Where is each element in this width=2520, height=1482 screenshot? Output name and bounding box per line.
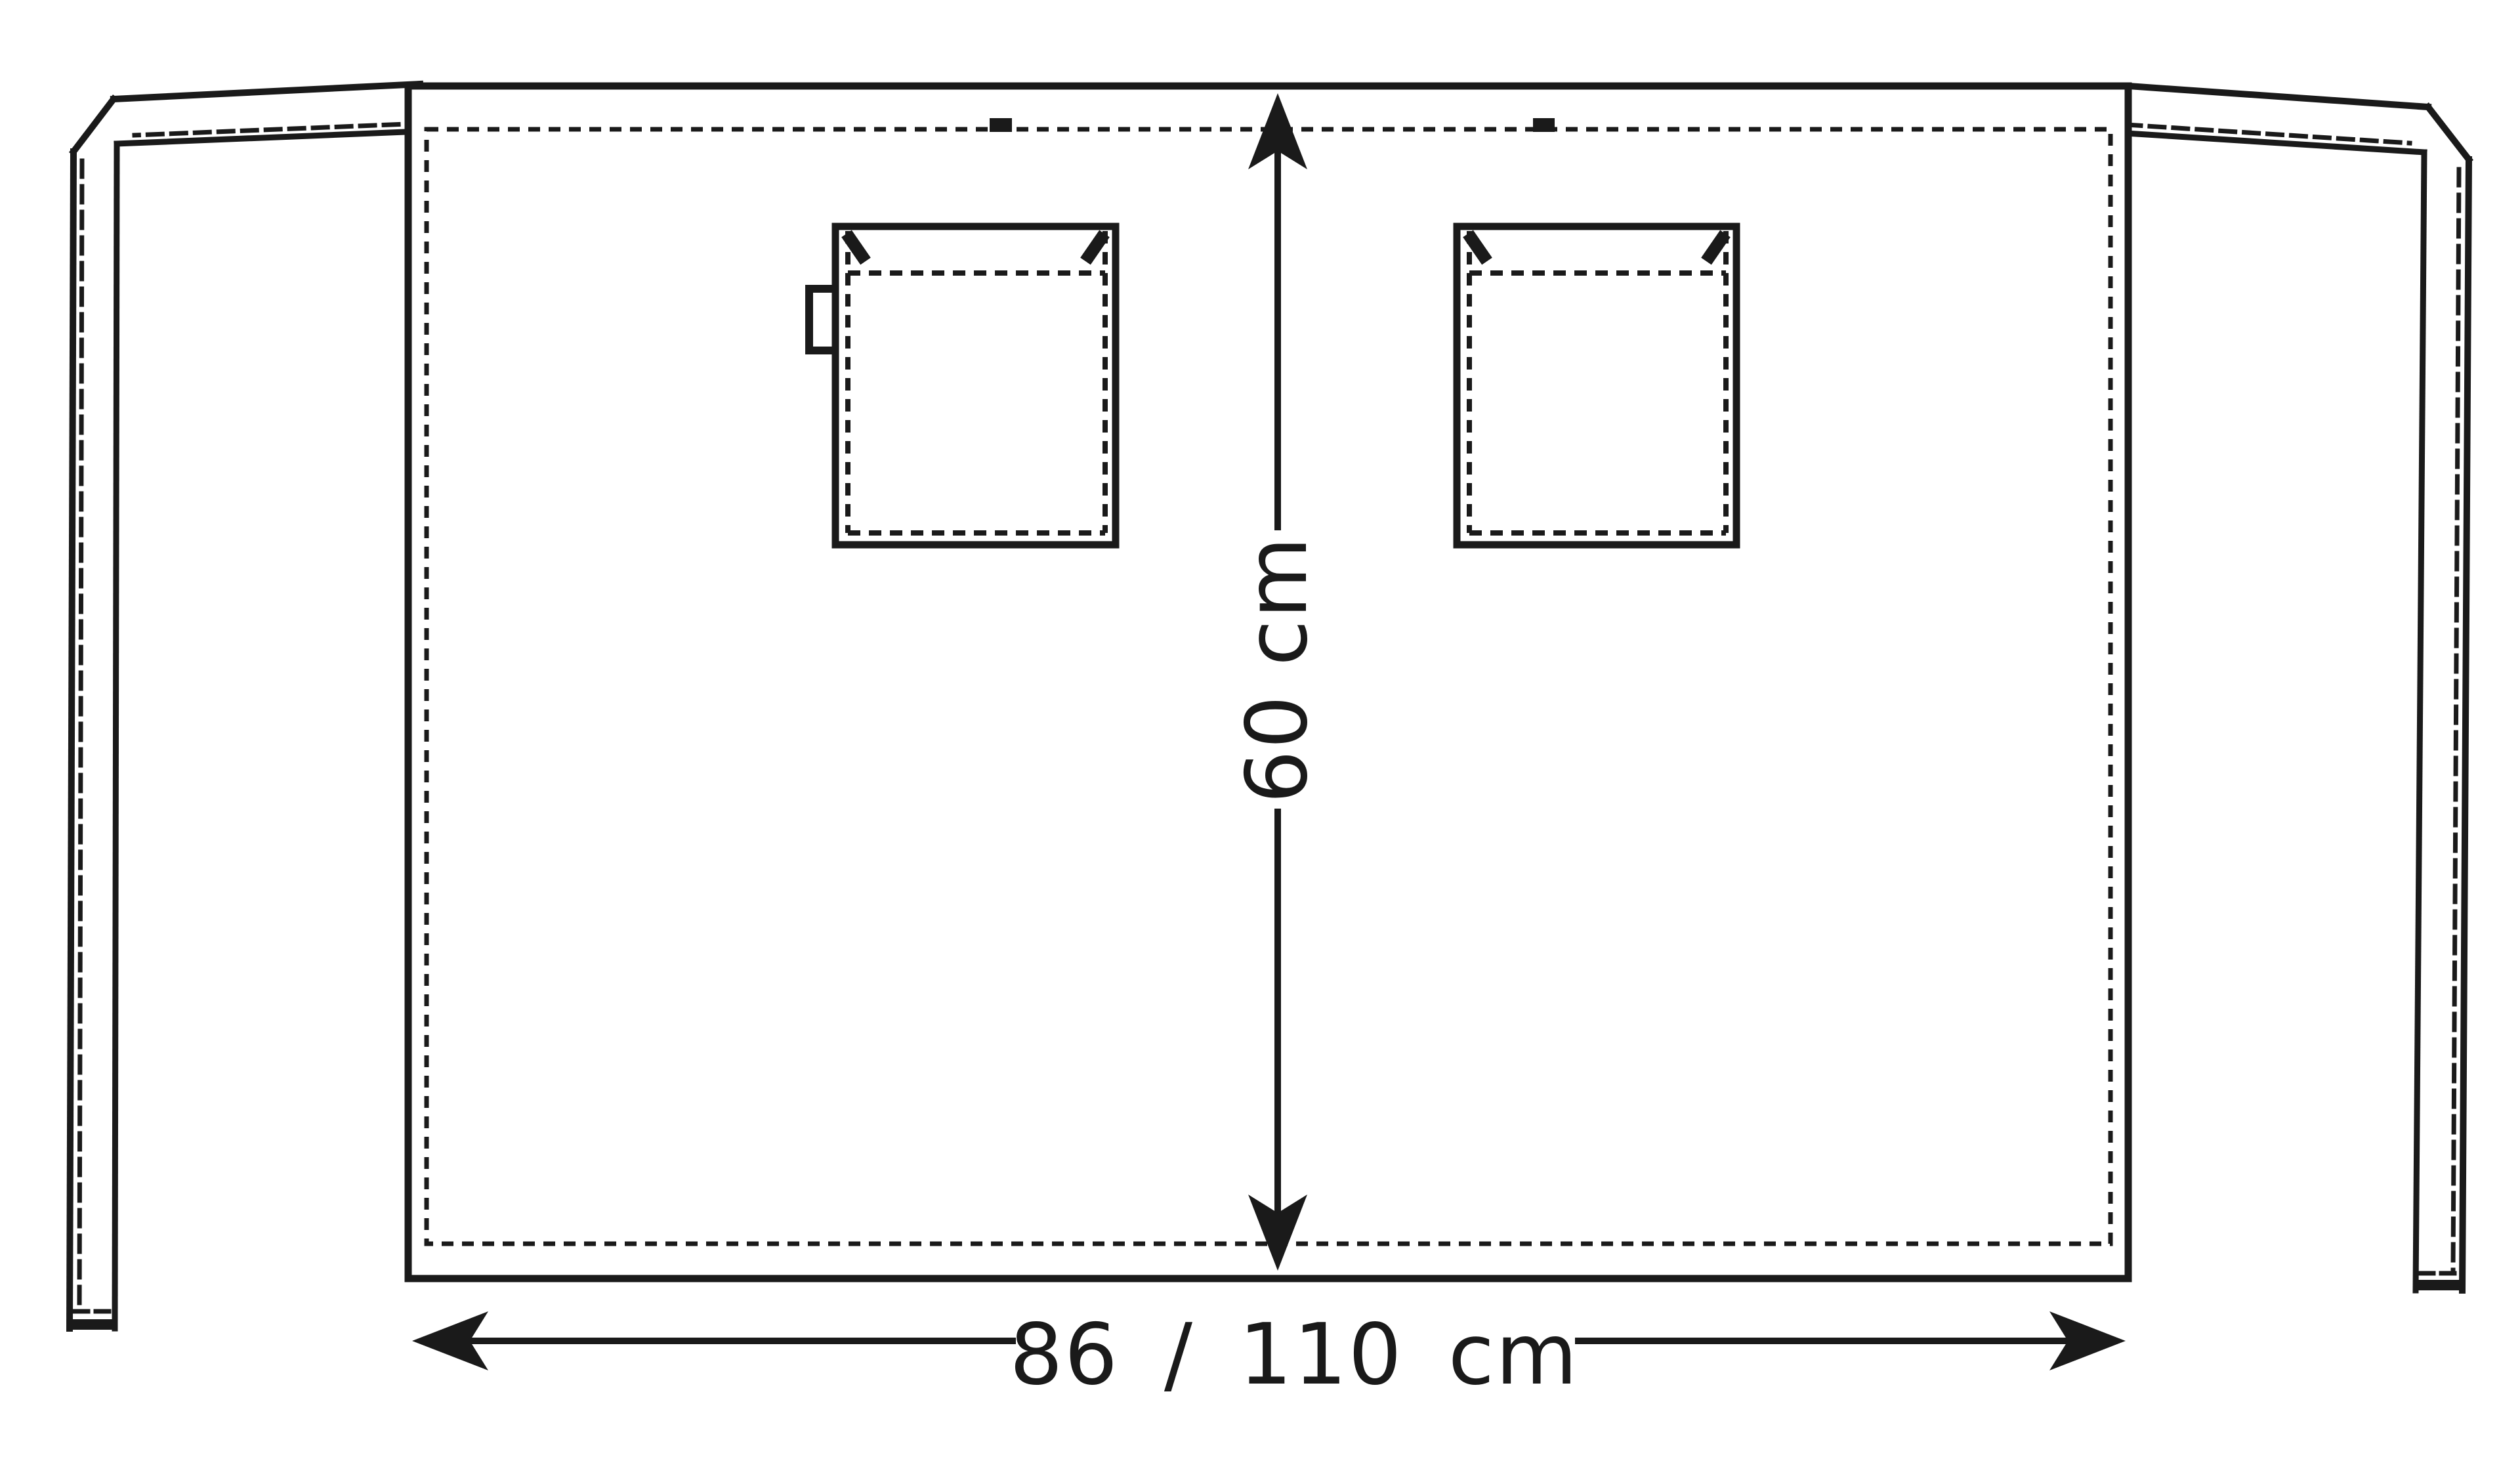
apron-diagram-page: 60 cm 86 / 110 cm — [0, 0, 2520, 1482]
width-dimension-label: 86 / 110 cm — [1009, 1306, 1578, 1404]
left-tie-strap-outer-edge — [70, 152, 73, 1328]
left-tie-end-cap — [70, 1319, 115, 1330]
left-tie-strap-inner-edge — [115, 144, 117, 1328]
right-tie-end-cap — [2416, 1280, 2462, 1290]
apron-technical-drawing: 60 cm 86 / 110 cm — [0, 0, 2520, 1482]
height-dimension-label: 60 cm — [1228, 536, 1326, 804]
left-pocket — [809, 226, 1116, 545]
right-hanging-loop-mark — [1533, 118, 1555, 132]
left-hanging-loop-mark — [990, 118, 1012, 132]
right-pocket — [1457, 226, 1736, 545]
